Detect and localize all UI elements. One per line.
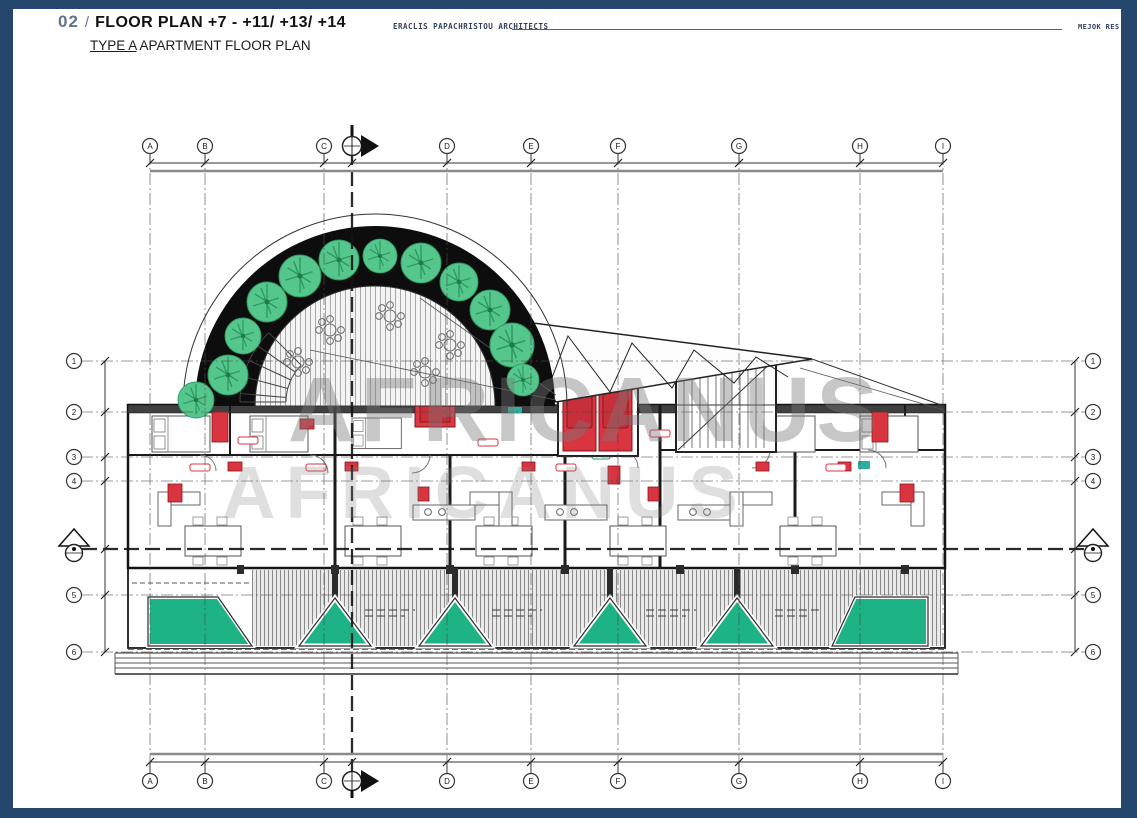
section-marker-right (1078, 529, 1108, 562)
grid-label: 5 (1091, 591, 1096, 600)
grid-label: F (616, 777, 621, 786)
balcony-terrace (128, 568, 945, 649)
grid-label: E (528, 142, 533, 151)
bottom-steps (115, 653, 958, 674)
project-ref: MEJOK RES (1078, 23, 1120, 31)
grid-bubbles-left: 1 2 3 4 5 6 (67, 354, 82, 660)
grid-label: D (444, 777, 450, 786)
section-marker-top (343, 125, 380, 157)
grid-label: 5 (72, 591, 77, 600)
section-marker-bottom (343, 770, 380, 798)
grid-label: C (321, 777, 327, 786)
subtitle-text: APARTMENT FLOOR PLAN (137, 38, 311, 53)
grid-label: 6 (72, 648, 77, 657)
section-marker-left (59, 529, 89, 562)
grid-bubbles-top: A B C D E F G H I (143, 139, 951, 164)
sheet-title: FLOOR PLAN +7 - +11/ +13/ +14 (95, 14, 346, 31)
grid-label: B (202, 777, 207, 786)
grid-label: I (942, 777, 944, 786)
grid-bubbles-bottom: A B C D E F G H I (143, 762, 951, 789)
grid-label: 3 (1091, 453, 1096, 462)
garden-semicircle (178, 214, 567, 418)
grid-label: A (147, 142, 153, 151)
drawing-sheet: 02/FLOOR PLAN +7 - +11/ +13/ +14 TYPE A … (0, 0, 1137, 818)
grid-label: 6 (1091, 648, 1096, 657)
grid-bubbles-right: 1 2 3 4 5 6 (1086, 354, 1101, 660)
sheet-header: 02/FLOOR PLAN +7 - +11/ +13/ +14 (58, 12, 346, 32)
grid-label: 4 (72, 477, 77, 486)
grid-label: 4 (1091, 477, 1096, 486)
grid-label: 2 (1091, 408, 1096, 417)
grid-label: 3 (72, 453, 77, 462)
grid-label: B (202, 142, 207, 151)
grid-label: 2 (72, 408, 77, 417)
sheet-number: 02 (58, 12, 79, 31)
grid-label: G (736, 142, 742, 151)
grid-label: E (528, 777, 533, 786)
sheet-subtitle: TYPE A APARTMENT FLOOR PLAN (90, 38, 311, 53)
grid-label: I (942, 142, 944, 151)
grid-label: F (616, 142, 621, 151)
grid-label: A (147, 777, 153, 786)
grid-label: G (736, 777, 742, 786)
grid-label: 1 (1091, 357, 1096, 366)
sheet-number-separator: / (79, 14, 95, 31)
grid-label: 1 (72, 357, 77, 366)
grid-label: H (857, 142, 863, 151)
apartment-type-label: TYPE A (90, 38, 137, 53)
grid-label: D (444, 142, 450, 151)
grid-label: C (321, 142, 327, 151)
grid-label: H (857, 777, 863, 786)
floor-plan-drawing: A B C D E F G H I A B (0, 0, 1137, 818)
header-rule (512, 29, 1062, 30)
